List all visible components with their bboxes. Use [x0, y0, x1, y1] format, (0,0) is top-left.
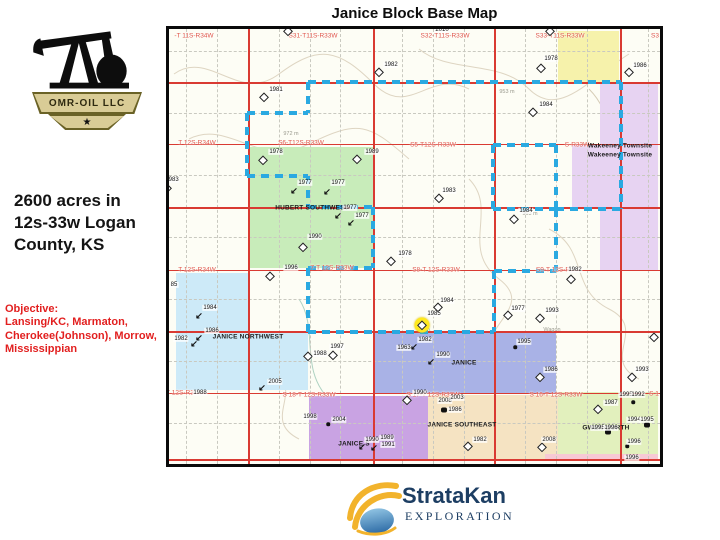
logo-banner: OMR-OIL LLC: [32, 92, 142, 114]
well-year-label: 1984: [202, 305, 217, 311]
well-year-label: 1982: [417, 337, 432, 343]
section-label: S8-T 12S-R33W: [412, 267, 460, 274]
well-year-label: 1982: [173, 336, 188, 342]
well-year-label: 1986: [204, 328, 219, 334]
well-year-label: 1986: [447, 407, 462, 413]
well-year-label: 1983: [441, 188, 456, 194]
contour-label: Wagon: [543, 327, 560, 333]
lease-name-label: Wakeeney Townsite: [588, 143, 652, 150]
well-year-label: 2005: [267, 379, 282, 385]
section-line: [648, 29, 649, 464]
well-year-label: 1996: [603, 425, 618, 431]
well-year-label: 1996: [626, 439, 641, 445]
section-label: S33-T11S-R33W: [535, 33, 584, 40]
well-year-label: 1991: [380, 442, 395, 448]
lease-name-label: JANICE NORTHWEST: [213, 334, 284, 341]
logo-banner-star: ★: [48, 114, 126, 130]
section-label: S-R33W: [565, 142, 590, 149]
block-boundary: [247, 174, 308, 178]
section-line: [169, 237, 660, 238]
deviated-well-icon: ↙: [347, 219, 355, 228]
block-boundary: [554, 145, 558, 209]
deviated-well-icon: ↙: [334, 212, 342, 221]
section-label: S9-T 12S-R: [536, 267, 570, 274]
block-boundary: [308, 330, 494, 334]
section-line: [217, 29, 218, 464]
well-year-label: 1996: [624, 455, 639, 461]
objective-text: Objective: Lansing/KC, Marmaton, Cheroke…: [5, 303, 170, 357]
section-line: [279, 29, 280, 464]
well-year-label: 1978: [397, 251, 412, 257]
block-boundary: [306, 82, 310, 113]
well-year-label: 1988: [312, 351, 327, 357]
well-year-label: 1989: [364, 149, 379, 155]
well-year-label: 1977: [330, 180, 345, 186]
well-symbol-icon: [631, 400, 635, 404]
block-boundary: [308, 80, 621, 84]
well-year-label: 1992: [630, 392, 645, 398]
well-symbol-icon: [513, 345, 517, 349]
block-boundary: [556, 207, 621, 211]
well-symbol-icon: [441, 408, 447, 413]
section-label: S 16-T 12S-R33W: [530, 392, 583, 399]
deviated-well-icon: ↙: [370, 444, 378, 453]
well-year-label: 1988: [192, 390, 207, 396]
well-year-label: 1982: [383, 62, 398, 68]
parcel-janice-northwest-upper: [176, 273, 250, 331]
section-line: [525, 29, 526, 464]
section-line: [587, 29, 588, 464]
block-boundary: [247, 111, 308, 115]
deviated-well-icon: ↙: [290, 187, 298, 196]
section-label: S31-T11S-R33W: [288, 33, 337, 40]
well-year-label: 1987: [603, 400, 618, 406]
well-year-label: 1977: [510, 306, 525, 312]
deviated-well-icon: ↙: [323, 188, 331, 197]
well-year-label: 1984: [538, 102, 553, 108]
contour-label: 953 m: [499, 89, 514, 95]
well-year-label: 1982: [472, 437, 487, 443]
deviated-well-icon: ↙: [410, 343, 418, 352]
well-year-label: 1977: [354, 213, 369, 219]
parcel-janice-south: [309, 396, 428, 460]
well-symbol-icon: [644, 423, 650, 428]
section-label: T 12S-R34W: [178, 140, 215, 147]
well-year-label: 1993: [544, 308, 559, 314]
section-line: [310, 29, 311, 464]
well-year-label: 2003: [449, 395, 464, 401]
well-year-label: 1982: [567, 267, 582, 273]
section-label: S5-T12S-R33W: [410, 142, 456, 149]
block-boundary: [492, 271, 496, 332]
well-year-label: 1997: [329, 344, 344, 350]
well-year-label: 1983: [169, 177, 180, 183]
block-boundary: [491, 145, 495, 209]
page-title: Janice Block Base Map: [166, 5, 663, 22]
road-line: [494, 29, 496, 464]
deviated-well-icon: ↙: [195, 312, 203, 321]
block-boundary: [554, 209, 558, 271]
section-label: S6-T12S-R33W: [278, 140, 324, 147]
well-year-label: 1978: [268, 149, 283, 155]
well-year-label: 1977: [342, 205, 357, 211]
stratakan-subtitle: EXPLORATION: [405, 509, 514, 524]
road-line: [248, 29, 250, 464]
well-year-label: 2008: [541, 437, 556, 443]
well-year-label: 1998: [302, 414, 317, 420]
lease-name-label: JANICE SOUTHEAST: [428, 422, 497, 429]
well-year-label: 1986: [543, 367, 558, 373]
contour-label: 972 m: [283, 131, 298, 137]
map-frame: -T 11S-R34WS31-T11S-R33WS32-T11S-R33WS33…: [166, 26, 663, 467]
well-year-label: 1990: [435, 352, 450, 358]
section-label: S 1: [649, 391, 659, 398]
section-line: [186, 29, 187, 464]
stratakan-globe-icon: [342, 478, 402, 536]
section-label: T 12S-R34W: [178, 267, 215, 274]
deviated-well-icon: ↙: [258, 384, 266, 393]
well-year-label: 1986: [632, 63, 647, 69]
well-year-label: 85: [170, 282, 179, 288]
pumpjack-icon: [28, 22, 146, 92]
section-label: S 18-T 12S-R33W: [283, 392, 336, 399]
deviated-well-icon: ↙: [190, 340, 198, 349]
block-boundary: [493, 143, 556, 147]
well-year-label: 1995: [639, 417, 654, 423]
well-year-label: 1989: [379, 435, 394, 441]
well-year-label: 1978: [543, 56, 558, 62]
section-line: [169, 361, 660, 362]
section-line: [169, 175, 660, 176]
star-icon: ★: [50, 116, 124, 128]
section-line: [169, 51, 660, 52]
deviated-well-icon: ↙: [427, 358, 435, 367]
section-label: 7-T 12S-R33W: [310, 265, 353, 272]
well-year-label: 1977: [297, 180, 312, 186]
block-boundary: [245, 113, 249, 176]
section-label: -T 11S-R34W: [174, 33, 213, 40]
section-line: [169, 113, 660, 114]
well-year-label: 1993: [634, 367, 649, 373]
lease-name-label: JANICE: [451, 360, 476, 367]
section-label: T 12S-R3: [169, 390, 194, 397]
map-canvas: -T 11S-R34WS31-T11S-R33WS32-T11S-R33WS33…: [169, 29, 660, 464]
well-year-label: 1995: [516, 339, 531, 345]
acreage-text: 2600 acres in 12s-33w Logan County, KS: [14, 190, 169, 256]
section-label: S32-T11S-R33W: [420, 33, 469, 40]
well-year-label: 1985: [426, 311, 441, 317]
well-year-label: 1990: [412, 390, 427, 396]
lease-name-label: Wakeeney Townsite: [588, 152, 652, 159]
block-boundary: [371, 207, 375, 268]
logo-company-name: OMR-OIL LLC: [34, 94, 140, 112]
road-line: [169, 459, 660, 461]
well-symbol-icon: [326, 422, 330, 426]
section-line: [340, 29, 341, 464]
block-boundary: [306, 268, 310, 332]
section-label: S3: [651, 33, 659, 40]
section-line: [433, 29, 434, 464]
well-year-label: 2004: [331, 417, 346, 423]
well-year-label: 2010: [434, 29, 449, 33]
omr-oil-logo: OMR-OIL LLC ★: [28, 22, 146, 140]
well-year-label: 1990: [307, 234, 322, 240]
well-year-label: 1984: [518, 208, 533, 214]
well-year-label: 1981: [268, 87, 283, 93]
section-line: [169, 299, 660, 300]
well-year-label: 1984: [439, 298, 454, 304]
stratakan-wordmark: StrataKan: [402, 483, 506, 509]
well-year-label: 1996: [283, 265, 298, 271]
deviated-well-icon: ↙: [358, 443, 366, 452]
